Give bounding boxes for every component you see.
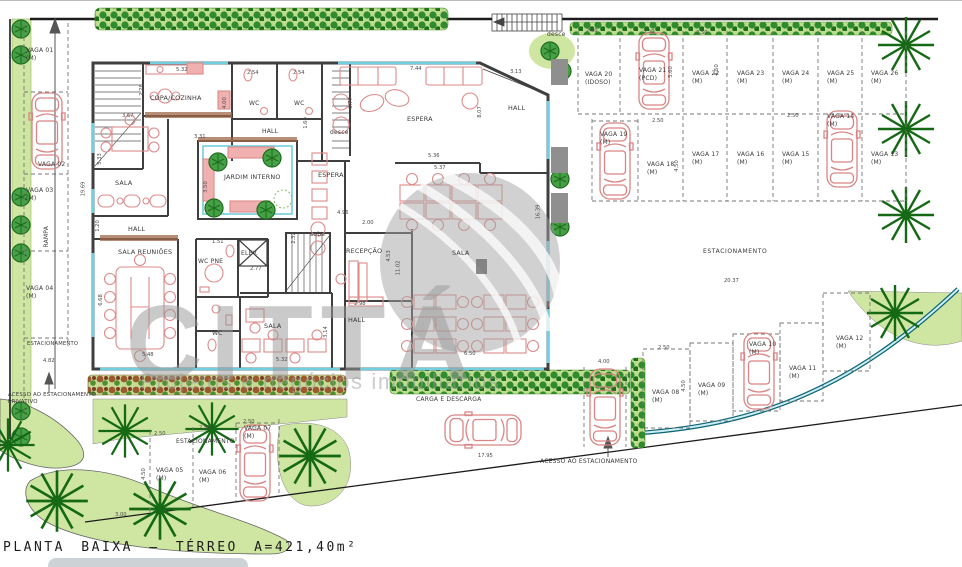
dim-v14-w: 2.50 (787, 113, 799, 119)
dim-entry-diag: 3.13 (510, 69, 522, 75)
label-vaga-05: VAGA 05 (M) (156, 467, 183, 482)
dim-frontage: 17.95 (478, 453, 493, 459)
dim-sobe-h: 2.32 (291, 232, 297, 244)
label-vaga-11: VAGA 11 (M) (789, 365, 816, 380)
label-room-wc2: WC (294, 100, 305, 108)
label-vaga-23: VAGA 23 (M) (737, 70, 764, 85)
dim-row3-depth: 4.50 (681, 380, 687, 392)
dim-hall-center-w: 2.98 (354, 301, 366, 307)
dim-building-left: 19.69 (80, 182, 86, 197)
label-acesso-estacionamento: ACESSO AO ESTACIONAMENTO (540, 458, 638, 466)
dim-entry-w: 4.00 (598, 359, 610, 365)
label-vaga-08: VAGA 08 (M) (652, 389, 679, 404)
dim-v08-w: 2.50 (658, 345, 670, 351)
label-estacionamento-left: ESTACIONAMENTO (27, 341, 78, 348)
dim-reunioes-h: 6.68 (98, 294, 104, 306)
dim-copa-width: 5.32 (176, 67, 188, 73)
label-room-hall-right: HALL (508, 104, 525, 112)
label-vaga-16: VAGA 16 (M) (737, 151, 764, 166)
dim-sala-open-b: 5.37 (434, 165, 446, 171)
label-room-sala-open: SALA (452, 249, 469, 257)
label-vaga-25: VAGA 25 (M) (827, 70, 854, 85)
floor-plan-canvas: CITTÁ Projetos e negócios imobiliários C… (0, 0, 962, 567)
label-vaga-26: VAGA 26 (M) (871, 70, 898, 85)
label-room-sala-small: SALA (264, 322, 281, 330)
label-room-copa: COPA/COZINHA (150, 94, 202, 102)
label-vaga-21: VAGA 21 (PCD) (639, 67, 666, 82)
label-vaga-24: VAGA 24 (M) (782, 70, 809, 85)
label-stair-desce-int: desce (330, 129, 349, 137)
label-room-sala-left: SALA (115, 179, 132, 187)
dim-sala-open-a: 5.36 (428, 153, 440, 159)
label-room-recepcao: RECEPÇÃO (346, 247, 382, 255)
label-stair-sobe: sobe (310, 231, 325, 239)
dim-wcpne-w: 1.51 (212, 239, 224, 245)
label-room-espera-top: ESPERA (407, 115, 433, 123)
dim-sala-small-w: 5.32 (276, 357, 288, 363)
label-vaga-20: VAGA 20 (IDOSO) (585, 71, 612, 86)
label-vaga-04: VAGA 04 (M) (26, 285, 53, 300)
label-vaga-06: VAGA 06 (M) (199, 469, 226, 484)
watermark-tagline: Projetos e negócios imobiliários (140, 369, 501, 395)
dim-row1-depth: 4.50 (714, 64, 720, 76)
label-vaga-09: VAGA 09 (M) (698, 382, 725, 397)
label-vaga-03: VAGA 03 (M) (26, 187, 53, 202)
dim-v20-w: 2.50 (586, 28, 598, 34)
label-estacionamento-bottom: ESTACIONAMENTO (176, 438, 235, 446)
dim-sala-left-h: 5.33 (97, 153, 103, 165)
dim-elev-w: 2.77 (250, 266, 262, 272)
label-room-hall-left: HALL (128, 225, 145, 233)
dim-lane-w: 4.82 (43, 358, 55, 364)
dim-corridor: 3.31 (194, 134, 206, 140)
dim-v06-w: 2.50 (199, 425, 211, 431)
dim-jardim-h: 3.50 (203, 181, 209, 193)
dim-hall-top: 1.60 (303, 117, 309, 129)
dim-copa-depth: 4.00 (222, 97, 228, 109)
dim-sala-top: 3.67 (122, 113, 134, 119)
dim-building-right: 16.39 (535, 205, 541, 220)
dim-wc2-width: 2.54 (293, 70, 305, 76)
label-room-wc3: WC (212, 330, 223, 338)
dim-v18-w: 2.50 (652, 118, 664, 124)
label-vaga-15: VAGA 15 (M) (782, 151, 809, 166)
dim-v05-w: 2.50 (154, 431, 166, 437)
label-room-jardim: JARDIM INTERNO (224, 173, 281, 181)
label-vaga-07: VAGA 07 (M) (244, 425, 271, 440)
dim-wc1-width: 2.54 (247, 70, 259, 76)
label-vaga-02: VAGA 02 (38, 161, 65, 169)
dim-stair-width: 2.26 (139, 84, 145, 96)
label-room-espera-mid: ESPERA (318, 171, 344, 179)
dim-espera-mid-h: 4.96 (337, 210, 349, 216)
label-room-elev: ELEV. (241, 250, 258, 258)
dim-v05-depth: 4.50 (141, 468, 147, 480)
dim-lot-depth: 20.37 (724, 278, 739, 284)
dim-open-h: 11.02 (395, 261, 401, 276)
dim-recep-top: 2.00 (362, 220, 374, 226)
label-vaga-19: VAGA 19 (M) (600, 131, 627, 146)
dim-row2-depth: 4.50 (674, 160, 680, 172)
dim-hall-left-h: 1.20 (95, 220, 101, 232)
label-estacionamento-right: ESTACIONAMENTO (703, 248, 767, 256)
dim-v21-w: 3.50 (643, 29, 655, 35)
label-vaga-14: VAGA 14 (M) (827, 113, 854, 128)
label-acesso-privativo: ACESSO AO ESTACIONAMENTO PRIVATIVO (8, 392, 96, 406)
dim-corner: 3.00 (115, 512, 127, 518)
dim-recep-h: 4.53 (386, 250, 392, 262)
label-vaga-17: VAGA 17 (M) (692, 151, 719, 166)
label-room-wc-pne: WC PNE (198, 258, 223, 266)
label-carga-descarga: CARGA E DESCARGA (416, 396, 481, 404)
label-vaga-18: VAGA 18 (M) (647, 161, 674, 176)
label-room-hall-top: HALL (262, 128, 278, 136)
label-room-hall-center: HALL (348, 316, 365, 324)
dim-open-w: 6.50 (464, 351, 476, 357)
label-rampa: RAMPA (43, 226, 51, 248)
drawing-title: PLANTA BAIXA – TÉRREO A=421,40m² (3, 540, 357, 555)
dim-espera-left: 3.77 (348, 97, 354, 109)
dim-reunioes-w: 5.48 (142, 352, 154, 358)
dim-espera-right: 8.07 (477, 106, 483, 118)
label-vaga-10: VAGA 10 (M) (749, 341, 776, 356)
label-stair-desce-ext: desce (547, 31, 566, 39)
label-vaga-01: VAGA 01 (M) (26, 47, 53, 62)
dim-v22-w: 2.50 (696, 30, 708, 36)
dim-sala-small-h: 3.14 (323, 326, 329, 338)
dim-v07-w: 2.50 (243, 419, 255, 425)
dim-v21-depth: 5.60 (668, 66, 674, 78)
label-vaga-12: VAGA 12 (M) (836, 335, 863, 350)
label-vaga-13: VAGA 13 (M) (871, 151, 898, 166)
label-room-wc1: WC (249, 100, 260, 108)
label-room-sala-reunioes: SALA REUNIÕES (118, 248, 172, 256)
dim-espera-w: 7.44 (410, 66, 422, 72)
